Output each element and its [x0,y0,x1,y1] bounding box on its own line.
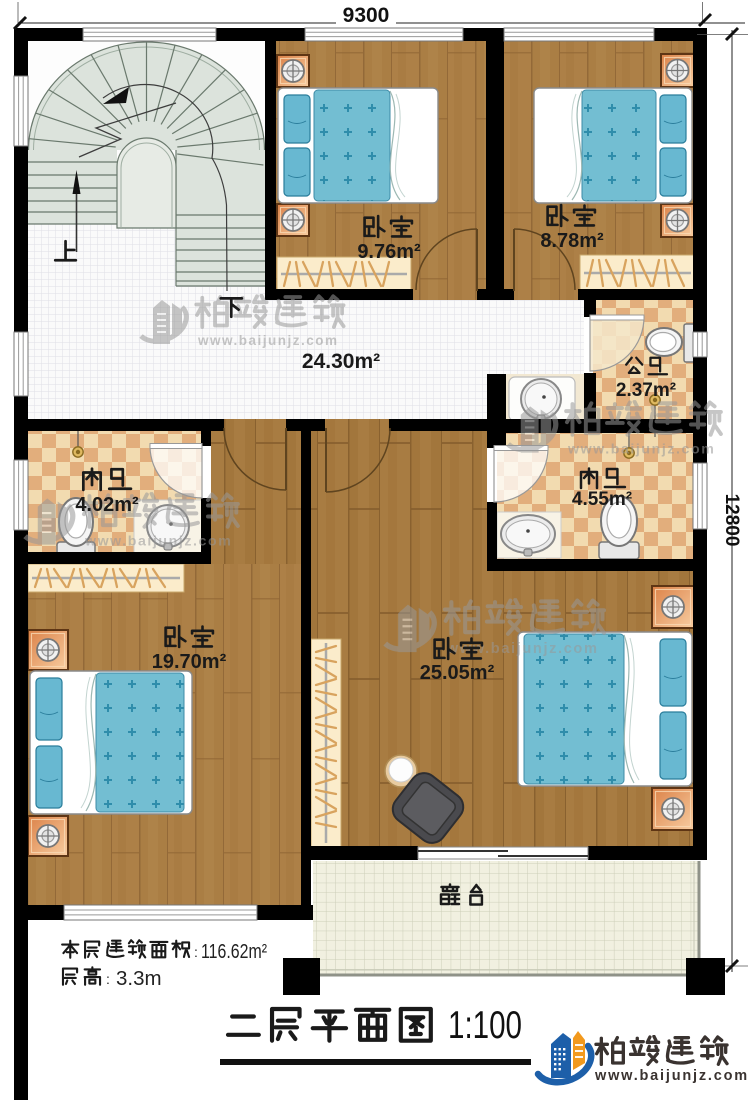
svg-text:24.30m²: 24.30m² [302,350,380,373]
svg-text:116.62m²: 116.62m² [201,940,267,963]
svg-text:12800: 12800 [721,494,742,547]
svg-text:www.baijunjz.com: www.baijunjz.com [594,1068,749,1084]
svg-text:4.02m²: 4.02m² [75,494,139,516]
svg-text:2.37m²: 2.37m² [616,380,676,401]
svg-text::: : [106,971,110,987]
svg-text:25.05m²: 25.05m² [420,662,495,684]
svg-text:9.76m²: 9.76m² [357,241,421,263]
svg-text:www.baijunjz.com: www.baijunjz.com [567,442,715,458]
svg-text:8.78m²: 8.78m² [540,230,604,252]
svg-text:www.baijunjz.com: www.baijunjz.com [197,333,339,348]
svg-text::: : [194,944,198,960]
svg-text:4.55m²: 4.55m² [572,489,632,510]
svg-text:19.70m²: 19.70m² [152,651,227,673]
svg-text:1:100: 1:100 [448,1004,522,1047]
svg-text:3.3m: 3.3m [116,967,162,990]
svg-text:9300: 9300 [343,4,390,27]
svg-text:www.baijunjz.com: www.baijunjz.com [84,534,232,550]
